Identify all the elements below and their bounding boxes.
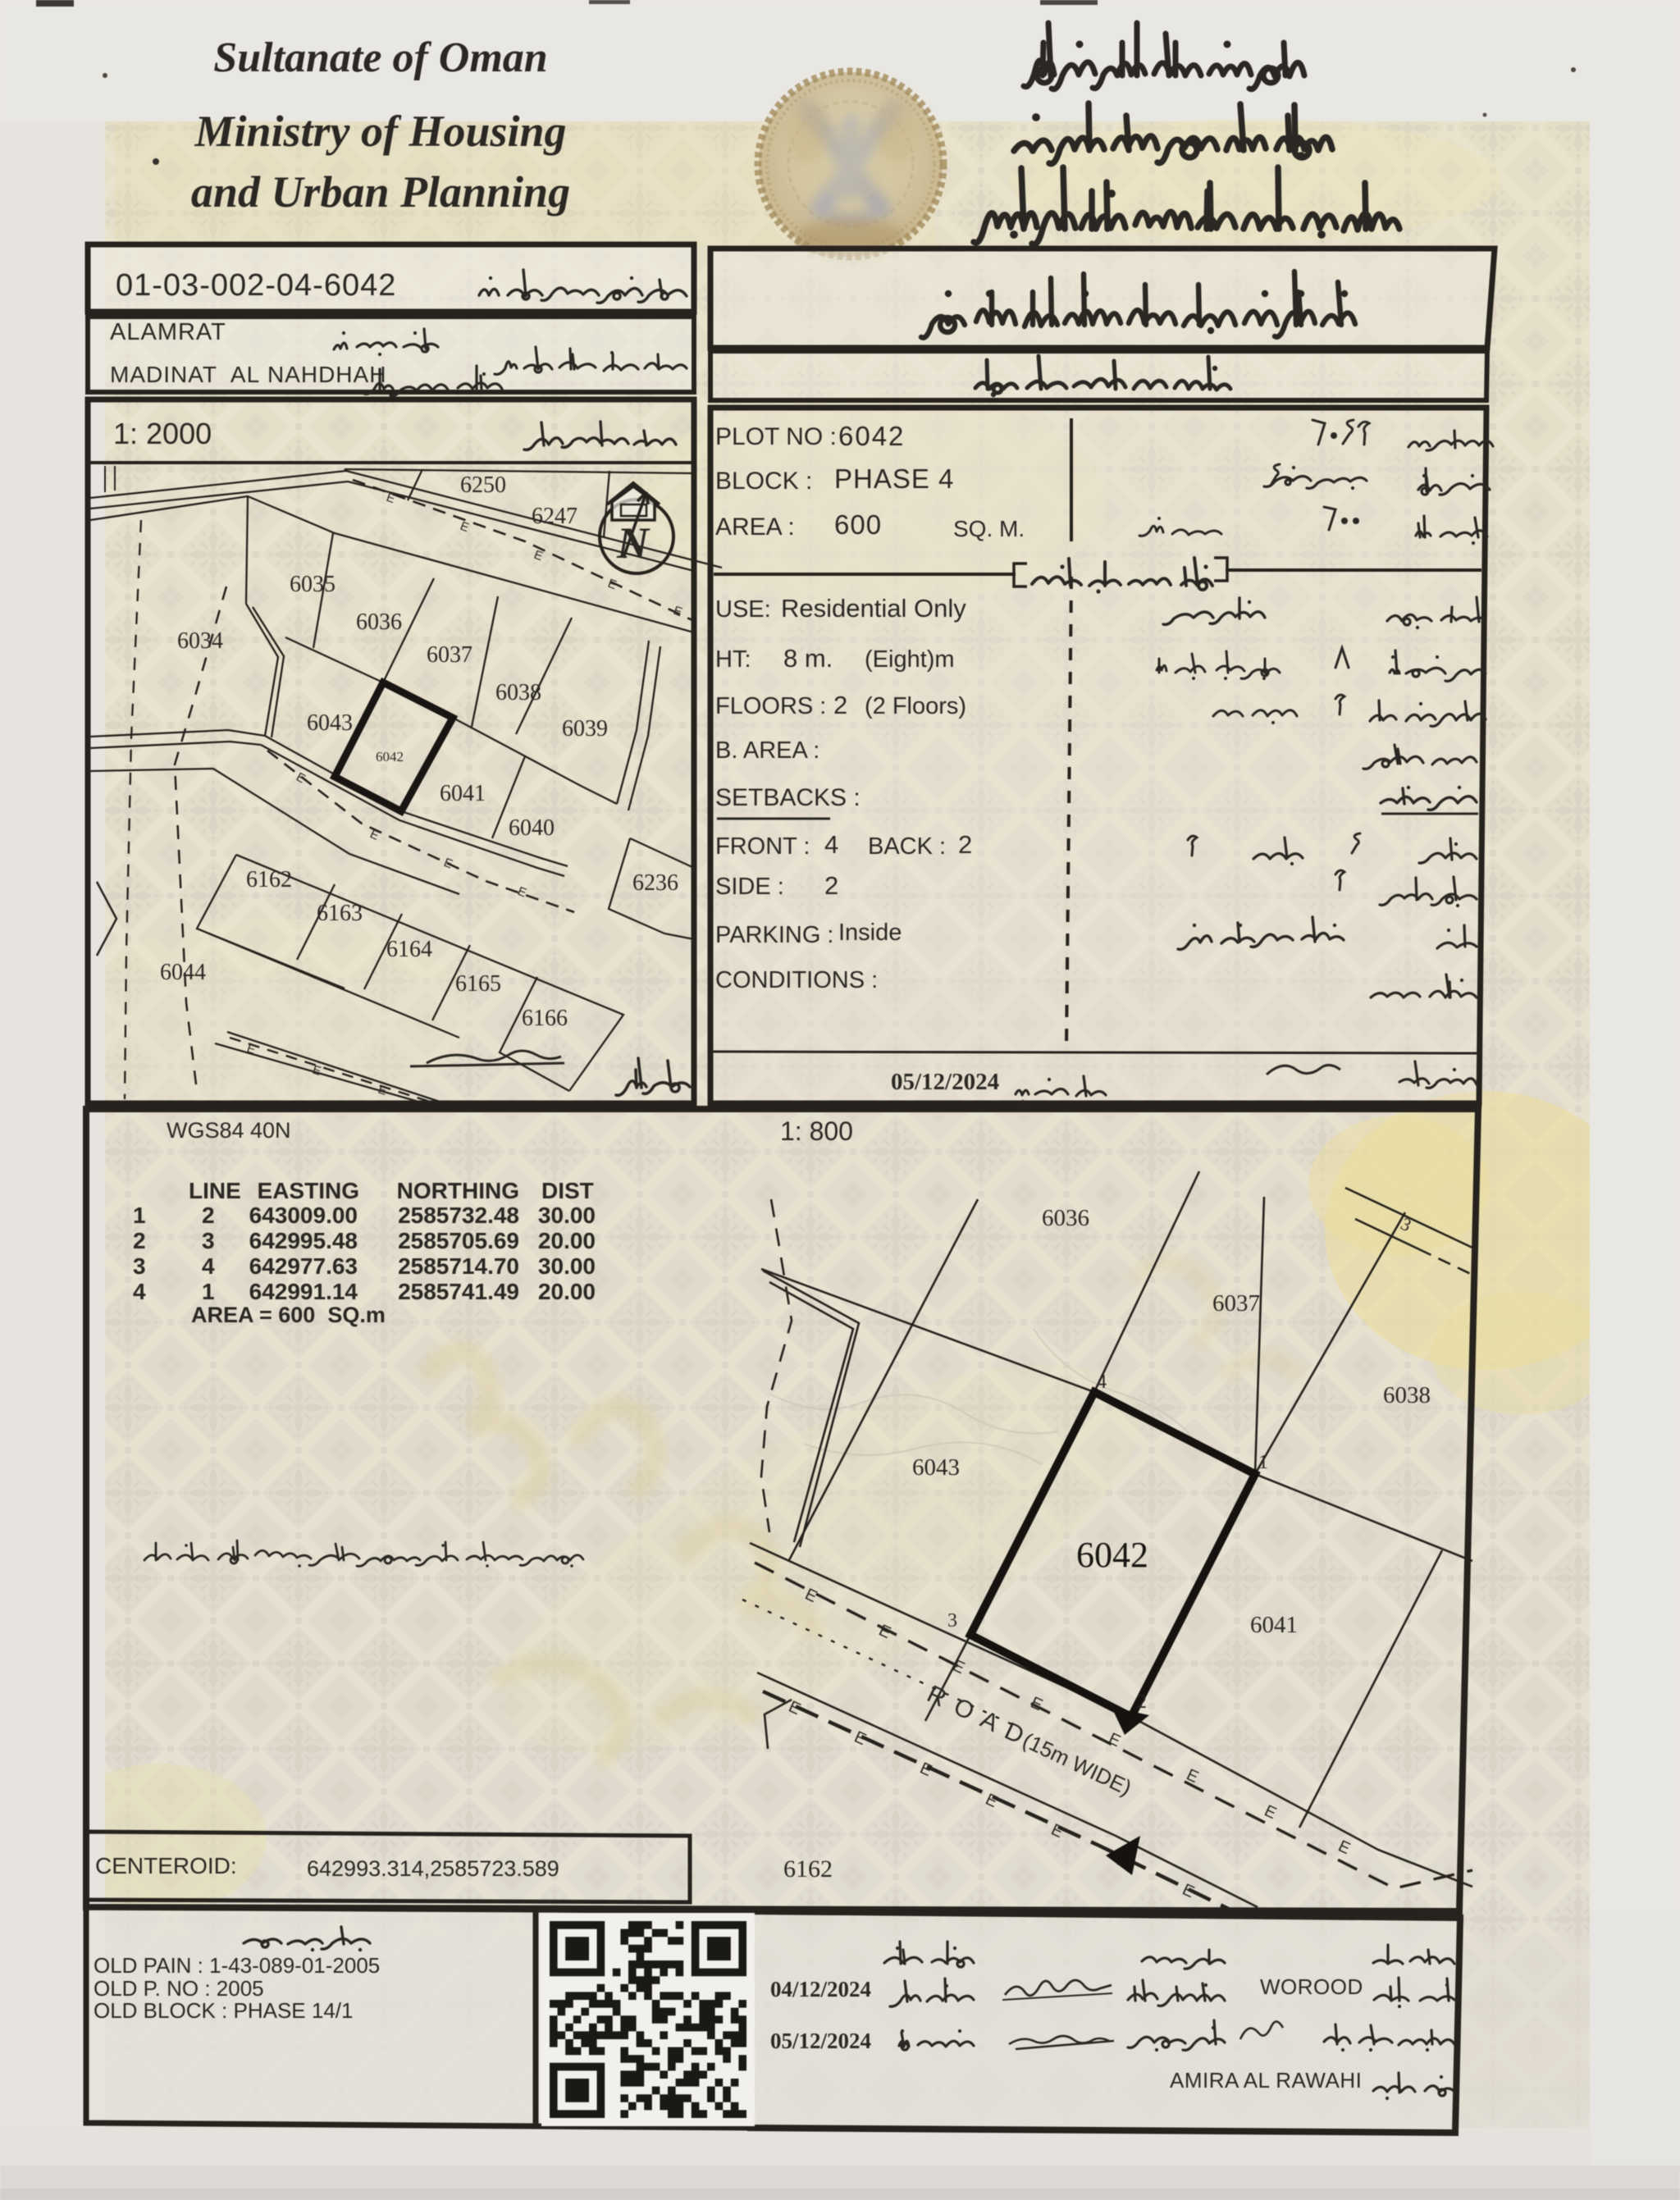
- svg-text:6034: 6034: [177, 628, 223, 654]
- svg-text:N: N: [616, 518, 651, 568]
- svg-text:6042: 6042: [376, 749, 404, 765]
- svg-text:3: 3: [947, 1610, 957, 1632]
- svg-text:1: 1: [1258, 1452, 1268, 1473]
- svg-text:6247: 6247: [532, 504, 577, 529]
- svg-text:6037: 6037: [1212, 1290, 1260, 1317]
- svg-text:6165: 6165: [455, 971, 501, 997]
- svg-text:2: 2: [1137, 1691, 1147, 1713]
- svg-text:6042: 6042: [1076, 1535, 1148, 1575]
- svg-text:6036: 6036: [1042, 1205, 1089, 1231]
- svg-text:6166: 6166: [522, 1006, 568, 1031]
- svg-text:6043: 6043: [912, 1454, 960, 1481]
- svg-text:6043: 6043: [307, 710, 353, 736]
- svg-text:6038: 6038: [1383, 1382, 1431, 1408]
- svg-text:6038: 6038: [495, 680, 541, 705]
- svg-text:6163: 6163: [317, 901, 363, 926]
- svg-text:6162: 6162: [246, 867, 292, 892]
- svg-text:6041: 6041: [1250, 1612, 1298, 1638]
- svg-text:4: 4: [1097, 1372, 1107, 1393]
- svg-text:6040: 6040: [509, 815, 555, 841]
- svg-text:6035: 6035: [290, 572, 336, 597]
- svg-text:6044: 6044: [160, 960, 206, 985]
- svg-text:6039: 6039: [562, 716, 608, 742]
- svg-text:6036: 6036: [356, 609, 402, 635]
- svg-text:6250: 6250: [460, 472, 506, 498]
- svg-text:6236: 6236: [632, 870, 678, 896]
- svg-text:6037: 6037: [427, 642, 472, 668]
- svg-text:6164: 6164: [386, 937, 432, 962]
- svg-text:6041: 6041: [440, 781, 486, 806]
